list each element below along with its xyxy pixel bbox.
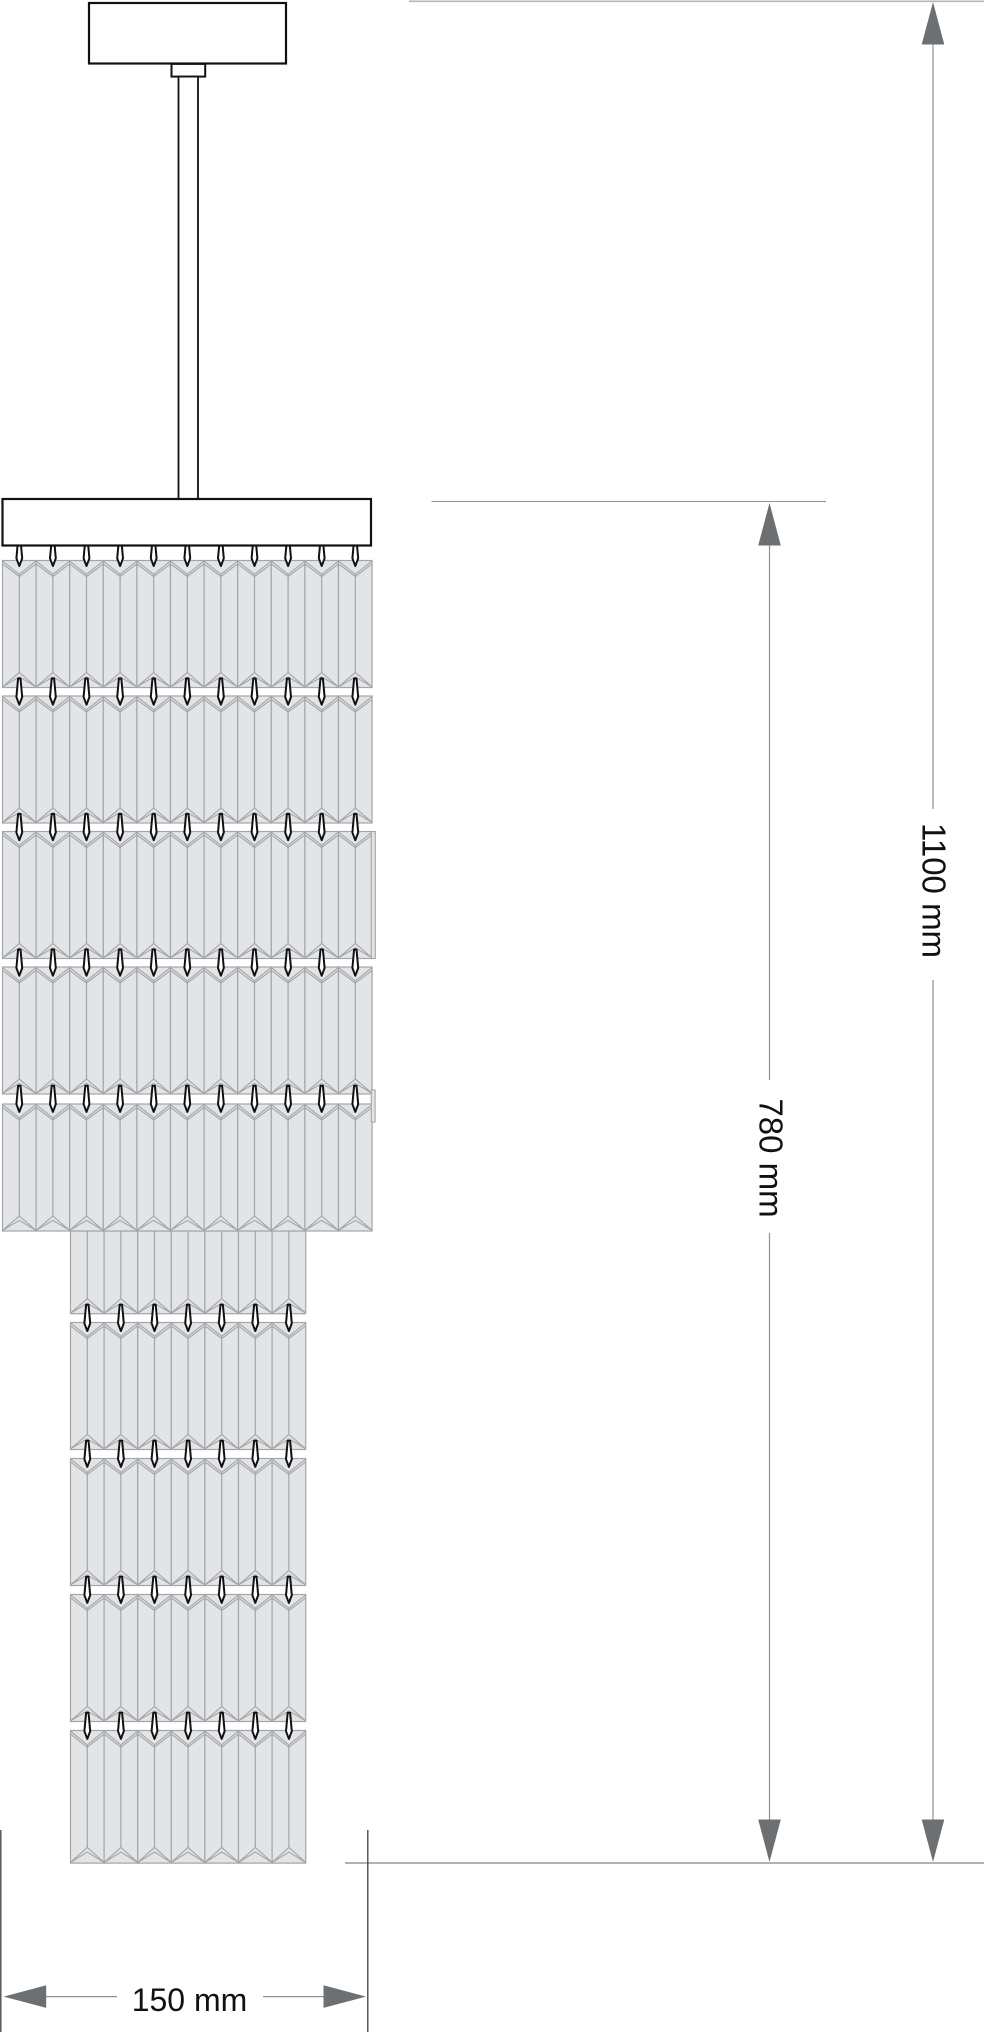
svg-text:150 mm: 150 mm	[132, 1982, 248, 2018]
svg-text:1100 mm: 1100 mm	[916, 823, 953, 958]
svg-text:780 mm: 780 mm	[753, 1098, 790, 1217]
